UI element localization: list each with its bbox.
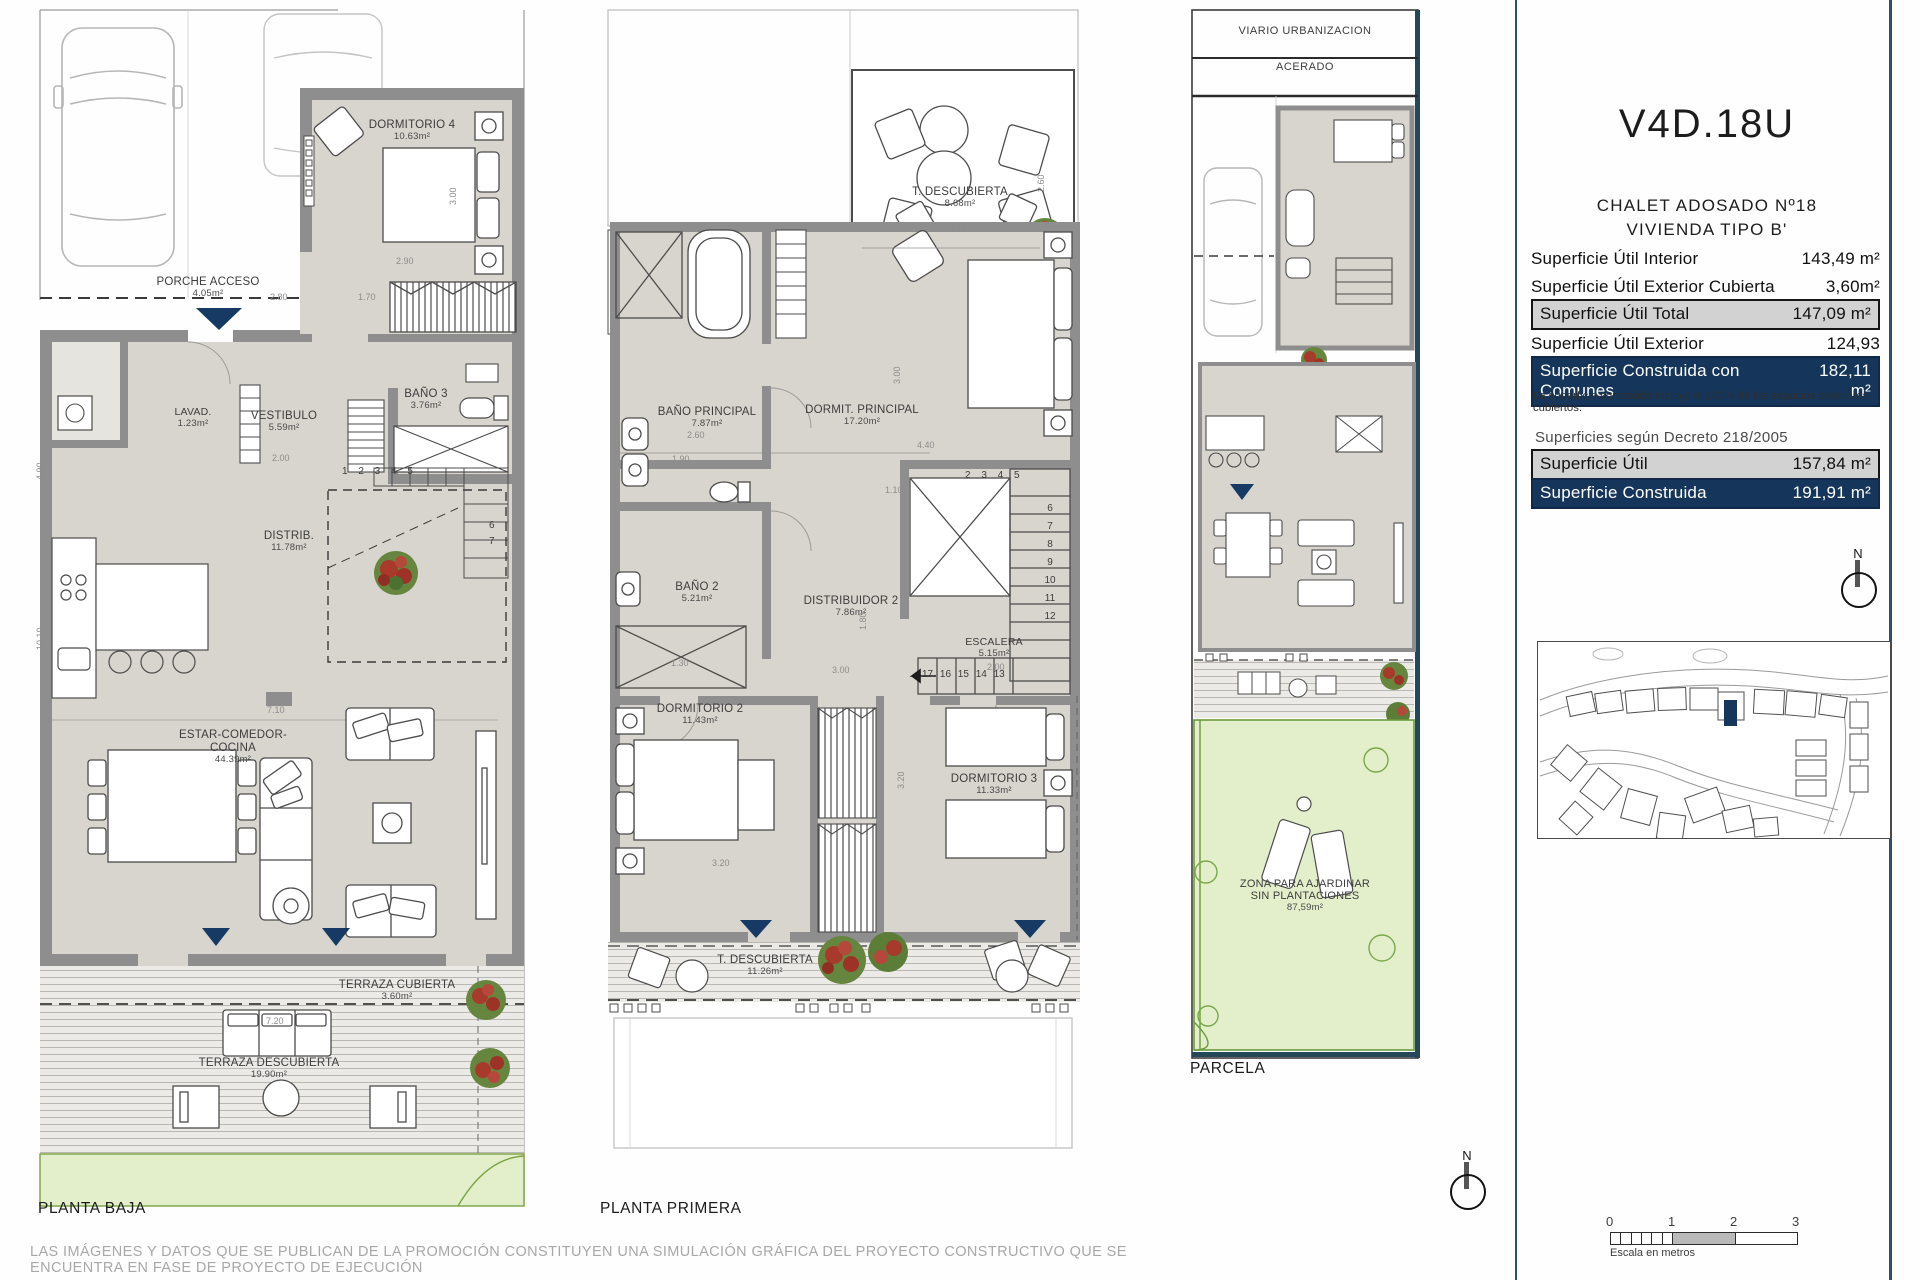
panel-separator-line	[1515, 0, 1517, 1280]
plan-title-planta-baja: PLANTA BAJA	[38, 1200, 146, 1218]
stair-numbers-row: 2 3 4 5	[965, 470, 1020, 481]
surface-note: La superficie construida incluye el 100%…	[1533, 390, 1885, 414]
scale-tick: 1	[1668, 1214, 1675, 1229]
dimension-label: 4.40	[917, 440, 935, 450]
decreto-row-construida: Superficie Construida 191,91 m²	[1531, 478, 1880, 509]
stair-numbers-column: 6 7 8 9 10 11 12	[1040, 500, 1060, 626]
room-label-bano-principal: BAÑO PRINCIPAL 7.87m²	[652, 406, 762, 430]
dimension-label: 3.00	[892, 366, 902, 384]
room-name: LAVAD.	[160, 407, 226, 419]
surface-value: 3,60m²	[1826, 277, 1880, 297]
room-label-t-descubierta-bottom: T. DESCUBIERTA 11.26m²	[708, 954, 822, 978]
room-name: TERRAZA DESCUBIERTA	[198, 1057, 340, 1070]
room-name: T. DESCUBIERTA	[903, 186, 1017, 199]
room-label-terraza-cubierta: TERRAZA CUBIERTA 3.60m²	[338, 979, 456, 1003]
surface-value: 157,84 m²	[1793, 454, 1871, 474]
room-label-distribuidor-2: DISTRIBUIDOR 2 7.86m²	[796, 595, 906, 619]
surface-row-util-interior: Superficie Útil Interior 143,49 m²	[1531, 249, 1880, 269]
dimension-label: 2.60	[687, 430, 705, 440]
dimension-label: 3.20	[712, 858, 730, 868]
room-area: 7.86m²	[796, 608, 906, 619]
dimension-label: 1.30	[671, 658, 689, 668]
room-area: 11.43m²	[648, 716, 752, 727]
dimension-label: 2.00	[987, 662, 1005, 672]
scale-tick: 0	[1606, 1214, 1613, 1229]
room-label-distribuidor: DISTRIB. 11.78m²	[252, 530, 326, 554]
room-name: DORMITORIO 4	[342, 119, 482, 132]
room-area: 8.68m²	[903, 199, 1017, 210]
room-name: BAÑO 3	[394, 388, 458, 401]
dimension-label: 1.10	[885, 485, 903, 495]
room-label-vestibulo: VESTIBULO 5.59m²	[242, 410, 326, 434]
zone-name-line1: ZONA PARA AJARDINAR	[1238, 878, 1372, 890]
dimension-label: 2.80	[270, 292, 288, 302]
room-area: 11.26m²	[708, 967, 822, 978]
room-area: 7.87m²	[652, 419, 762, 430]
room-label-dormit-principal: DORMIT. PRINCIPAL 17.20m²	[802, 404, 922, 428]
surface-label: Superficie Construida	[1540, 483, 1707, 503]
room-name: PORCHE ACCESO	[138, 276, 278, 289]
scale-caption: Escala en metros	[1610, 1247, 1695, 1259]
surface-value: 191,91 m²	[1793, 483, 1871, 503]
decreto-row-util: Superficie Útil 157,84 m²	[1531, 449, 1880, 480]
room-name: TERRAZA CUBIERTA	[338, 979, 456, 992]
label-acerado: ACERADO	[1230, 61, 1380, 73]
surface-value: 147,09 m²	[1793, 304, 1871, 324]
scale-tick: 2	[1730, 1214, 1737, 1229]
room-area: 19.90m²	[198, 1070, 340, 1081]
room-name: DORMITORIO 3	[942, 773, 1046, 786]
room-name: BAÑO PRINCIPAL	[652, 406, 762, 419]
zone-area: 87,59m²	[1238, 903, 1372, 914]
dimension-label: 4.90	[35, 462, 45, 480]
room-name: DISTRIB.	[252, 530, 326, 543]
scale-tick: 3	[1792, 1214, 1799, 1229]
room-area: 5.21m²	[664, 594, 730, 605]
dimension-label: 7.10	[267, 705, 285, 715]
room-area: 5.15m²	[952, 649, 1036, 660]
room-area: 3.76m²	[394, 401, 458, 412]
page-right-border	[1889, 0, 1892, 1280]
plan-title-planta-primera: PLANTA PRIMERA	[600, 1200, 742, 1218]
site-map-drawing	[1538, 642, 1890, 838]
room-area: 10.63m²	[342, 132, 482, 143]
highlighted-unit-marker	[1724, 700, 1737, 726]
dimension-label: 3.00	[832, 665, 850, 675]
room-area: 44.39m²	[158, 755, 308, 766]
room-area: 1.23m²	[160, 419, 226, 430]
room-label-lavadero: LAVAD. 1.23m²	[160, 407, 226, 429]
room-label-bano-3: BAÑO 3 3.76m²	[394, 388, 458, 412]
room-name: DORMIT. PRINCIPAL	[802, 404, 922, 417]
dimension-label: 2.90	[396, 256, 414, 266]
site-location-map	[1537, 641, 1891, 839]
footer-disclaimer: LAS IMÁGENES Y DATOS QUE SE PUBLICAN DE …	[30, 1244, 1200, 1276]
dimension-label: 7.20	[266, 1016, 284, 1026]
room-label-dormitorio-3: DORMITORIO 3 11.33m²	[942, 773, 1046, 797]
north-circle-icon	[1841, 572, 1877, 608]
room-label-estar-comedor-cocina: ESTAR-COMEDOR-COCINA 44.39m²	[158, 729, 308, 765]
stair-numbers-column: 6 7	[489, 518, 495, 550]
label-zona-ajardinar: ZONA PARA AJARDINAR SIN PLANTACIONES 87,…	[1238, 878, 1372, 913]
dimension-label: 1.70	[358, 292, 376, 302]
surface-row-util-total: Superficie Útil Total 147,09 m²	[1531, 299, 1880, 330]
scale-bar: 0 1 2 3 Escala en metros	[1604, 1214, 1814, 1264]
surface-label: Superficie Útil Exterior Cubierta	[1531, 277, 1775, 297]
room-label-dormitorio-4: DORMITORIO 4 10.63m²	[342, 119, 482, 143]
stair-numbers-row: 1 2 3 4 5	[342, 466, 413, 477]
surface-label: Superficie Útil Interior	[1531, 249, 1698, 269]
room-name: DISTRIBUIDOR 2	[796, 595, 906, 608]
north-arrow: N	[1838, 546, 1878, 608]
room-label-bano-2: BAÑO 2 5.21m²	[664, 581, 730, 605]
dimension-label: 10.10	[35, 627, 45, 650]
dimension-label: 3.00	[448, 187, 458, 205]
room-area: 5.59m²	[242, 423, 326, 434]
scale-bar-graphic	[1610, 1232, 1798, 1245]
unit-subtitle-tipo: VIVIENDA TIPO B'	[1531, 220, 1883, 240]
dimension-label: 1.90	[672, 454, 690, 464]
north-label: N	[1447, 1148, 1487, 1163]
parcela-drawing	[1186, 8, 1424, 1108]
room-area: 11.78m²	[252, 543, 326, 554]
plan-title-parcela: PARCELA	[1190, 1060, 1265, 1078]
room-label-escalera: ESCALERA 5.15m²	[952, 637, 1036, 659]
room-label-dormitorio-2: DORMITORIO 2 11.43m²	[648, 703, 752, 727]
room-label-t-descubierta-top: T. DESCUBIERTA 8.68m²	[903, 186, 1017, 210]
zone-name-line2: SIN PLANTACIONES	[1238, 890, 1372, 902]
floorplan-sheet: DORMITORIO 4 10.63m² PORCHE ACCESO 4.05m…	[0, 0, 1920, 1280]
north-circle-icon	[1450, 1174, 1486, 1210]
room-name: BAÑO 2	[664, 581, 730, 594]
dimension-label: 2.60	[1036, 174, 1046, 192]
surface-label: Superficie Útil	[1540, 454, 1648, 474]
dimension-label: 1.80	[858, 612, 868, 630]
decreto-heading: Superficies según Decreto 218/2005	[1535, 429, 1788, 446]
dimension-label: 2.00	[272, 453, 290, 463]
label-viario-urbanizacion: VIARIO URBANIZACION	[1230, 25, 1380, 37]
room-area: 11.33m²	[942, 786, 1046, 797]
north-label: N	[1838, 546, 1878, 561]
dimension-label: 3.20	[949, 223, 967, 233]
unit-code-title: V4D.18U	[1531, 102, 1883, 147]
surface-label: Superficie Útil Total	[1540, 304, 1689, 324]
room-label-porche-acceso: PORCHE ACCESO 4.05m²	[138, 276, 278, 300]
room-area: 3.60m²	[338, 992, 456, 1003]
room-label-terraza-descubierta: TERRAZA DESCUBIERTA 19.90m²	[198, 1057, 340, 1081]
strip-label: ACERADO	[1230, 61, 1380, 73]
unit-subtitle-chalet: CHALET ADOSADO Nº18	[1531, 196, 1883, 216]
surface-value: 143,49 m²	[1802, 249, 1880, 269]
room-name: ESCALERA	[952, 637, 1036, 649]
north-arrow: N	[1447, 1148, 1487, 1210]
room-area: 4.05m²	[138, 289, 278, 300]
room-area: 17.20m²	[802, 417, 922, 428]
surface-row-util-exterior-cubierta: Superficie Útil Exterior Cubierta 3,60m²	[1531, 277, 1880, 297]
room-name: T. DESCUBIERTA	[708, 954, 822, 967]
strip-label: VIARIO URBANIZACION	[1230, 25, 1380, 37]
dimension-label: 3.20	[896, 771, 906, 789]
room-name: VESTIBULO	[242, 410, 326, 423]
room-name: DORMITORIO 2	[648, 703, 752, 716]
room-name: ESTAR-COMEDOR-COCINA	[158, 729, 308, 755]
